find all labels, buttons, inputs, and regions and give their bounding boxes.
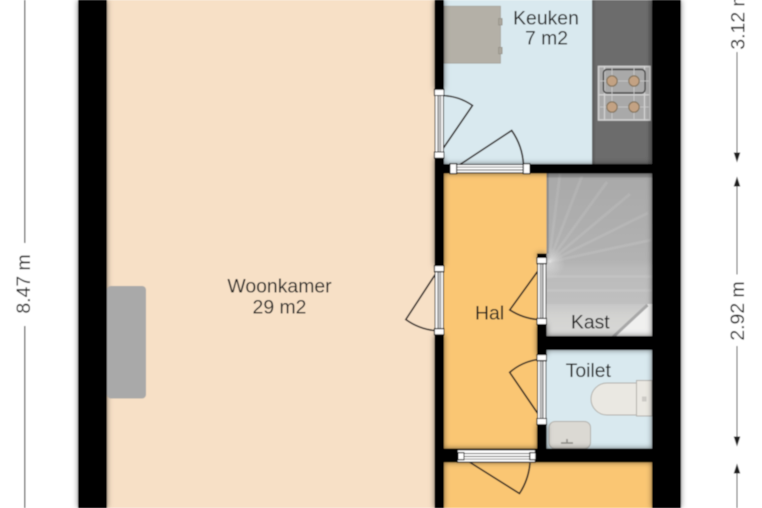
svg-text:Woonkamer: Woonkamer xyxy=(227,275,332,297)
svg-text:7 m2: 7 m2 xyxy=(525,27,568,49)
svg-text:8.47 m: 8.47 m xyxy=(13,254,35,313)
svg-text:Toilet: Toilet xyxy=(566,360,612,382)
svg-text:2.92 m: 2.92 m xyxy=(727,281,749,340)
svg-text:3.12 m: 3.12 m xyxy=(728,0,750,50)
svg-text:Hal: Hal xyxy=(475,303,504,325)
svg-text:Kast: Kast xyxy=(571,312,610,334)
svg-text:Keuken: Keuken xyxy=(513,8,579,30)
svg-text:29 m2: 29 m2 xyxy=(253,297,307,319)
